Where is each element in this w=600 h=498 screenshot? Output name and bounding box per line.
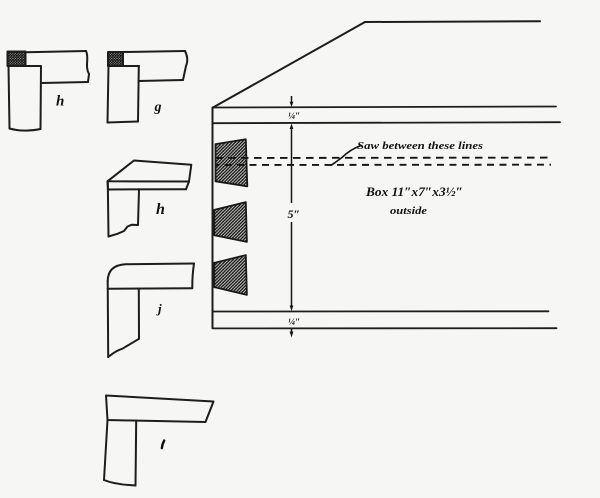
svg-text:outside: outside [390,206,427,217]
svg-text:g: g [154,100,162,115]
svg-text:¼″: ¼″ [288,111,300,122]
svg-text:h: h [56,94,64,110]
svg-text:Box 11″x7″x3½″: Box 11″x7″x3½″ [365,184,463,199]
svg-text:¼″: ¼″ [288,317,300,328]
svg-text:h: h [156,201,165,218]
svg-text:5″: 5″ [288,207,301,221]
svg-text:Saw between these lines: Saw between these lines [357,140,483,152]
